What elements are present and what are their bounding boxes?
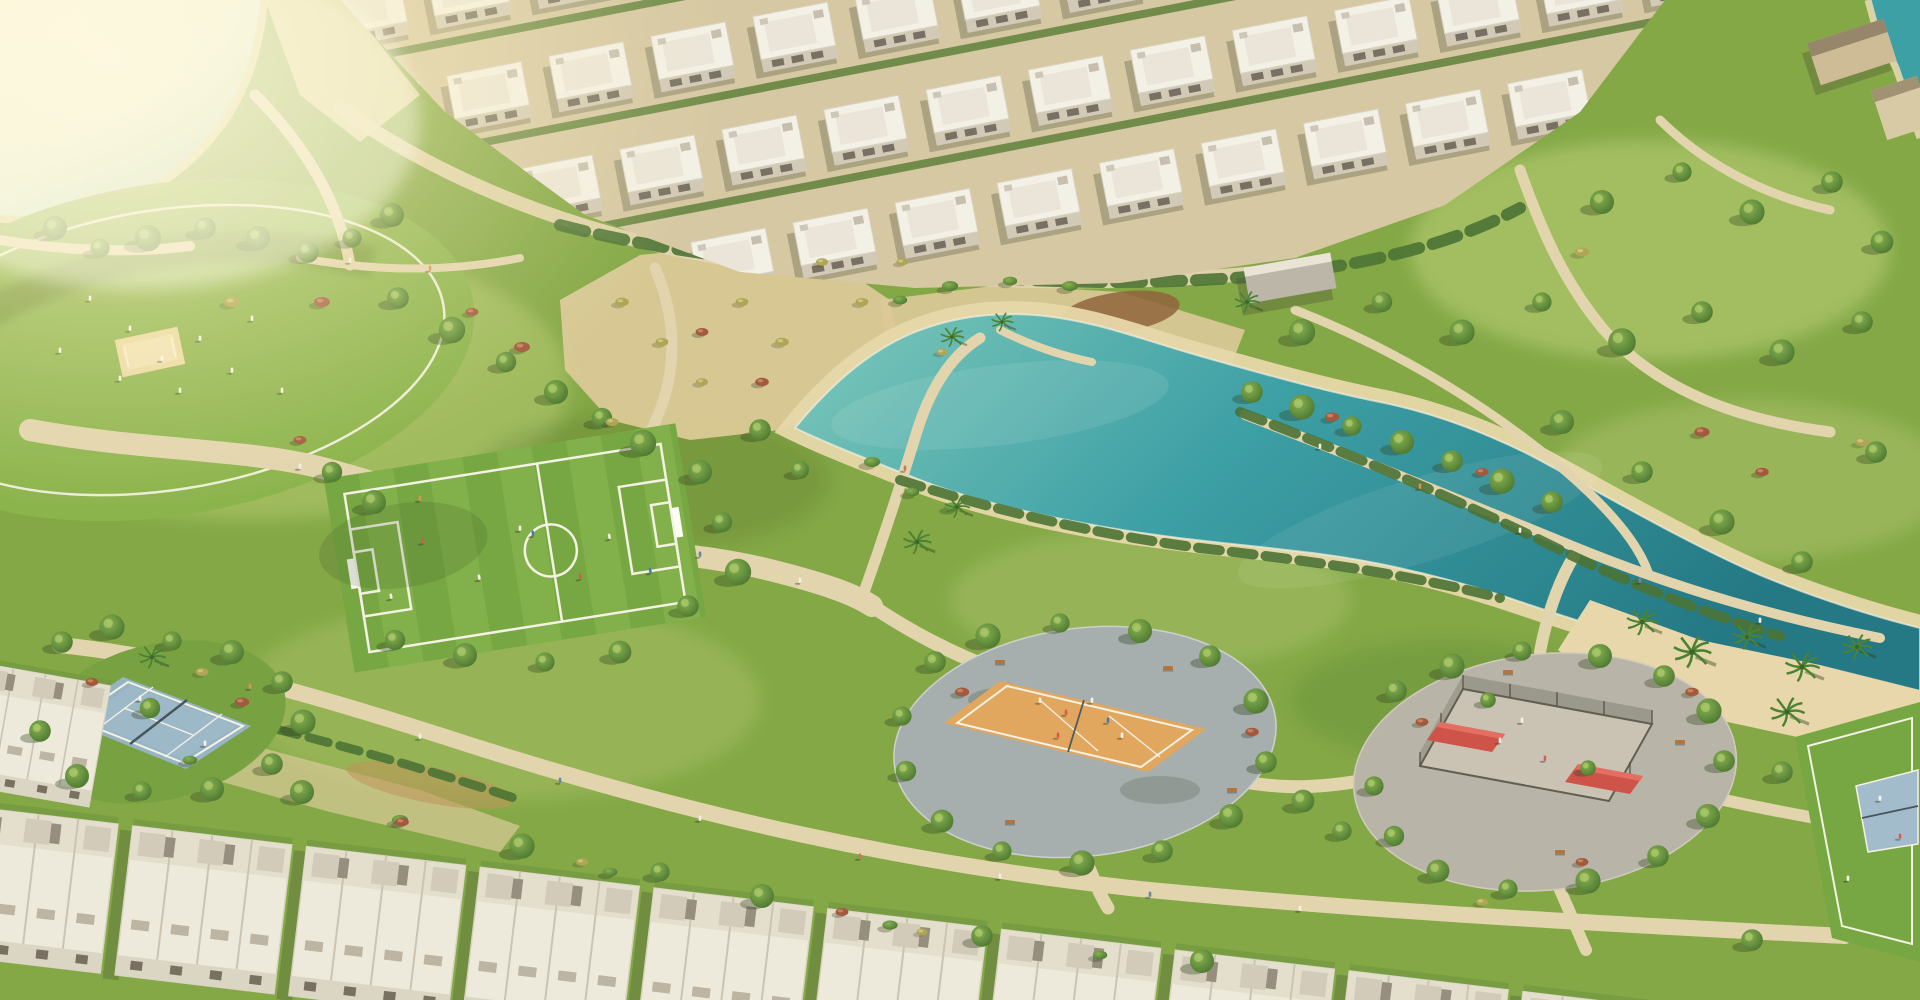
aerial-render [0,0,1920,1000]
screenshot-root [0,0,1920,1000]
